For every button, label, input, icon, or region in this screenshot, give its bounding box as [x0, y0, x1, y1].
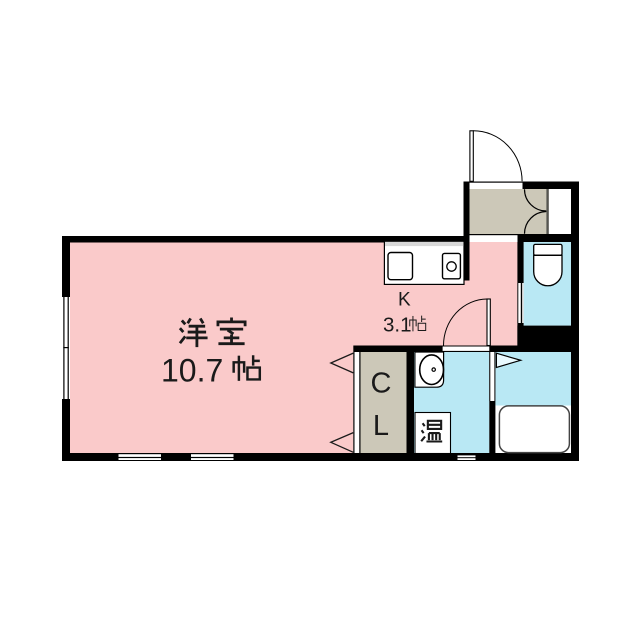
svg-text:K: K — [398, 290, 411, 311]
svg-text:L: L — [373, 410, 389, 442]
svg-text:3.1: 3.1 — [383, 313, 412, 336]
svg-text:10.7: 10.7 — [161, 353, 223, 389]
svg-text:C: C — [371, 367, 392, 399]
